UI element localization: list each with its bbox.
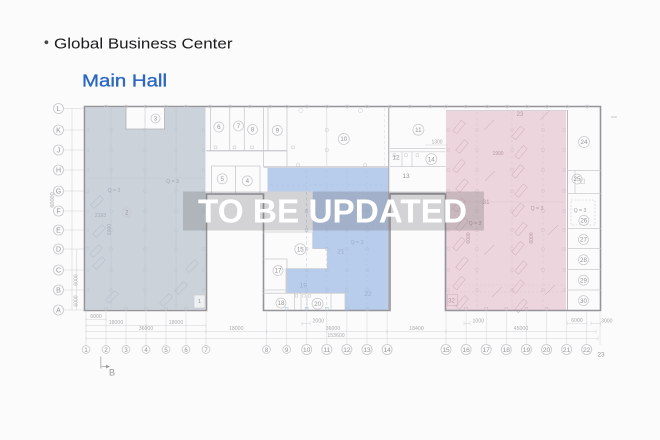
- svg-text:6: 6: [217, 124, 221, 131]
- svg-text:19: 19: [300, 283, 308, 290]
- svg-text:22: 22: [364, 291, 372, 298]
- svg-text:153600: 153600: [327, 333, 344, 339]
- svg-text:17: 17: [275, 268, 282, 275]
- svg-text:36000: 36000: [139, 326, 154, 332]
- svg-text:Main Hall: Main Hall: [82, 70, 167, 90]
- svg-text:18: 18: [503, 347, 511, 354]
- svg-text:19: 19: [523, 347, 531, 354]
- svg-text:23: 23: [517, 112, 524, 118]
- svg-text:30: 30: [580, 298, 587, 305]
- svg-text:11: 11: [323, 347, 330, 354]
- svg-text:27: 27: [580, 237, 587, 244]
- svg-text:E: E: [56, 227, 61, 234]
- svg-text:32: 32: [448, 299, 455, 305]
- svg-text:6000: 6000: [107, 224, 113, 235]
- svg-text:29: 29: [580, 277, 587, 284]
- svg-text:TO BE UPDATED: TO BE UPDATED: [198, 193, 467, 230]
- svg-text:12: 12: [343, 347, 351, 354]
- svg-text:F: F: [56, 208, 60, 215]
- svg-text:6000: 6000: [529, 232, 535, 243]
- svg-text:6000: 6000: [466, 232, 472, 243]
- svg-text:4: 4: [246, 178, 250, 185]
- svg-text:1300: 1300: [431, 140, 442, 146]
- svg-text:9: 9: [276, 128, 280, 135]
- svg-text:3: 3: [154, 116, 158, 123]
- svg-text:36000: 36000: [326, 326, 341, 332]
- svg-text:6000: 6000: [571, 318, 583, 324]
- svg-text:K: K: [56, 127, 61, 134]
- svg-text:7: 7: [237, 123, 241, 130]
- svg-text:18400: 18400: [409, 326, 424, 332]
- svg-text:17: 17: [483, 347, 491, 354]
- svg-text:1900: 1900: [492, 151, 503, 157]
- svg-text:18000: 18000: [229, 326, 244, 332]
- svg-text:20: 20: [314, 301, 321, 308]
- svg-text:2000: 2000: [313, 319, 325, 325]
- svg-text:15: 15: [297, 246, 304, 253]
- svg-text:14: 14: [383, 347, 391, 354]
- svg-text:8: 8: [251, 127, 255, 134]
- svg-text:1000: 1000: [473, 319, 485, 325]
- svg-text:60000: 60000: [50, 192, 56, 207]
- svg-text:A: A: [56, 307, 61, 314]
- svg-text:Q = 3: Q = 3: [108, 188, 121, 194]
- svg-text:21: 21: [563, 347, 571, 354]
- svg-text:14: 14: [428, 156, 435, 163]
- svg-text:6000: 6000: [90, 314, 102, 320]
- svg-text:18: 18: [278, 300, 285, 307]
- svg-text:45000: 45000: [514, 326, 529, 332]
- svg-text:B: B: [109, 368, 115, 378]
- svg-text:Q = 3: Q = 3: [166, 179, 179, 185]
- svg-text:11: 11: [415, 127, 422, 134]
- svg-text:22: 22: [583, 347, 591, 354]
- svg-text:B: B: [56, 287, 61, 294]
- svg-text:Global Business Center: Global Business Center: [54, 35, 232, 52]
- svg-text:J: J: [57, 147, 61, 154]
- svg-text:1: 1: [198, 299, 201, 305]
- svg-text:2: 2: [125, 210, 129, 217]
- svg-text:3000: 3000: [601, 319, 613, 325]
- svg-text:23: 23: [597, 352, 605, 359]
- svg-text:6000: 6000: [74, 274, 80, 285]
- svg-text:28: 28: [580, 257, 587, 264]
- svg-text:10: 10: [340, 136, 347, 143]
- svg-text:18000: 18000: [109, 320, 124, 326]
- svg-text:21: 21: [337, 249, 345, 256]
- svg-text:18000: 18000: [169, 320, 184, 326]
- svg-text:Q = 3: Q = 3: [574, 208, 587, 214]
- svg-text:6000: 6000: [74, 295, 80, 306]
- svg-text:Q = 3: Q = 3: [531, 206, 544, 212]
- svg-text:10: 10: [303, 347, 311, 354]
- svg-text:2193: 2193: [95, 213, 106, 219]
- svg-text:13: 13: [363, 347, 371, 354]
- svg-text:25: 25: [574, 176, 581, 183]
- svg-text:Q = 3: Q = 3: [351, 240, 364, 246]
- svg-text:12: 12: [392, 155, 400, 162]
- svg-text:24: 24: [581, 139, 588, 146]
- svg-text:H: H: [56, 167, 61, 174]
- svg-text:20: 20: [543, 347, 551, 354]
- svg-text:15: 15: [442, 347, 450, 354]
- svg-text:5: 5: [220, 176, 224, 183]
- svg-text:16: 16: [462, 347, 470, 354]
- svg-text:G: G: [56, 188, 61, 195]
- svg-text:C: C: [56, 267, 61, 274]
- svg-text:D: D: [56, 246, 61, 253]
- svg-text:L: L: [57, 106, 61, 113]
- svg-text:13: 13: [402, 173, 410, 180]
- svg-text:26: 26: [580, 218, 587, 225]
